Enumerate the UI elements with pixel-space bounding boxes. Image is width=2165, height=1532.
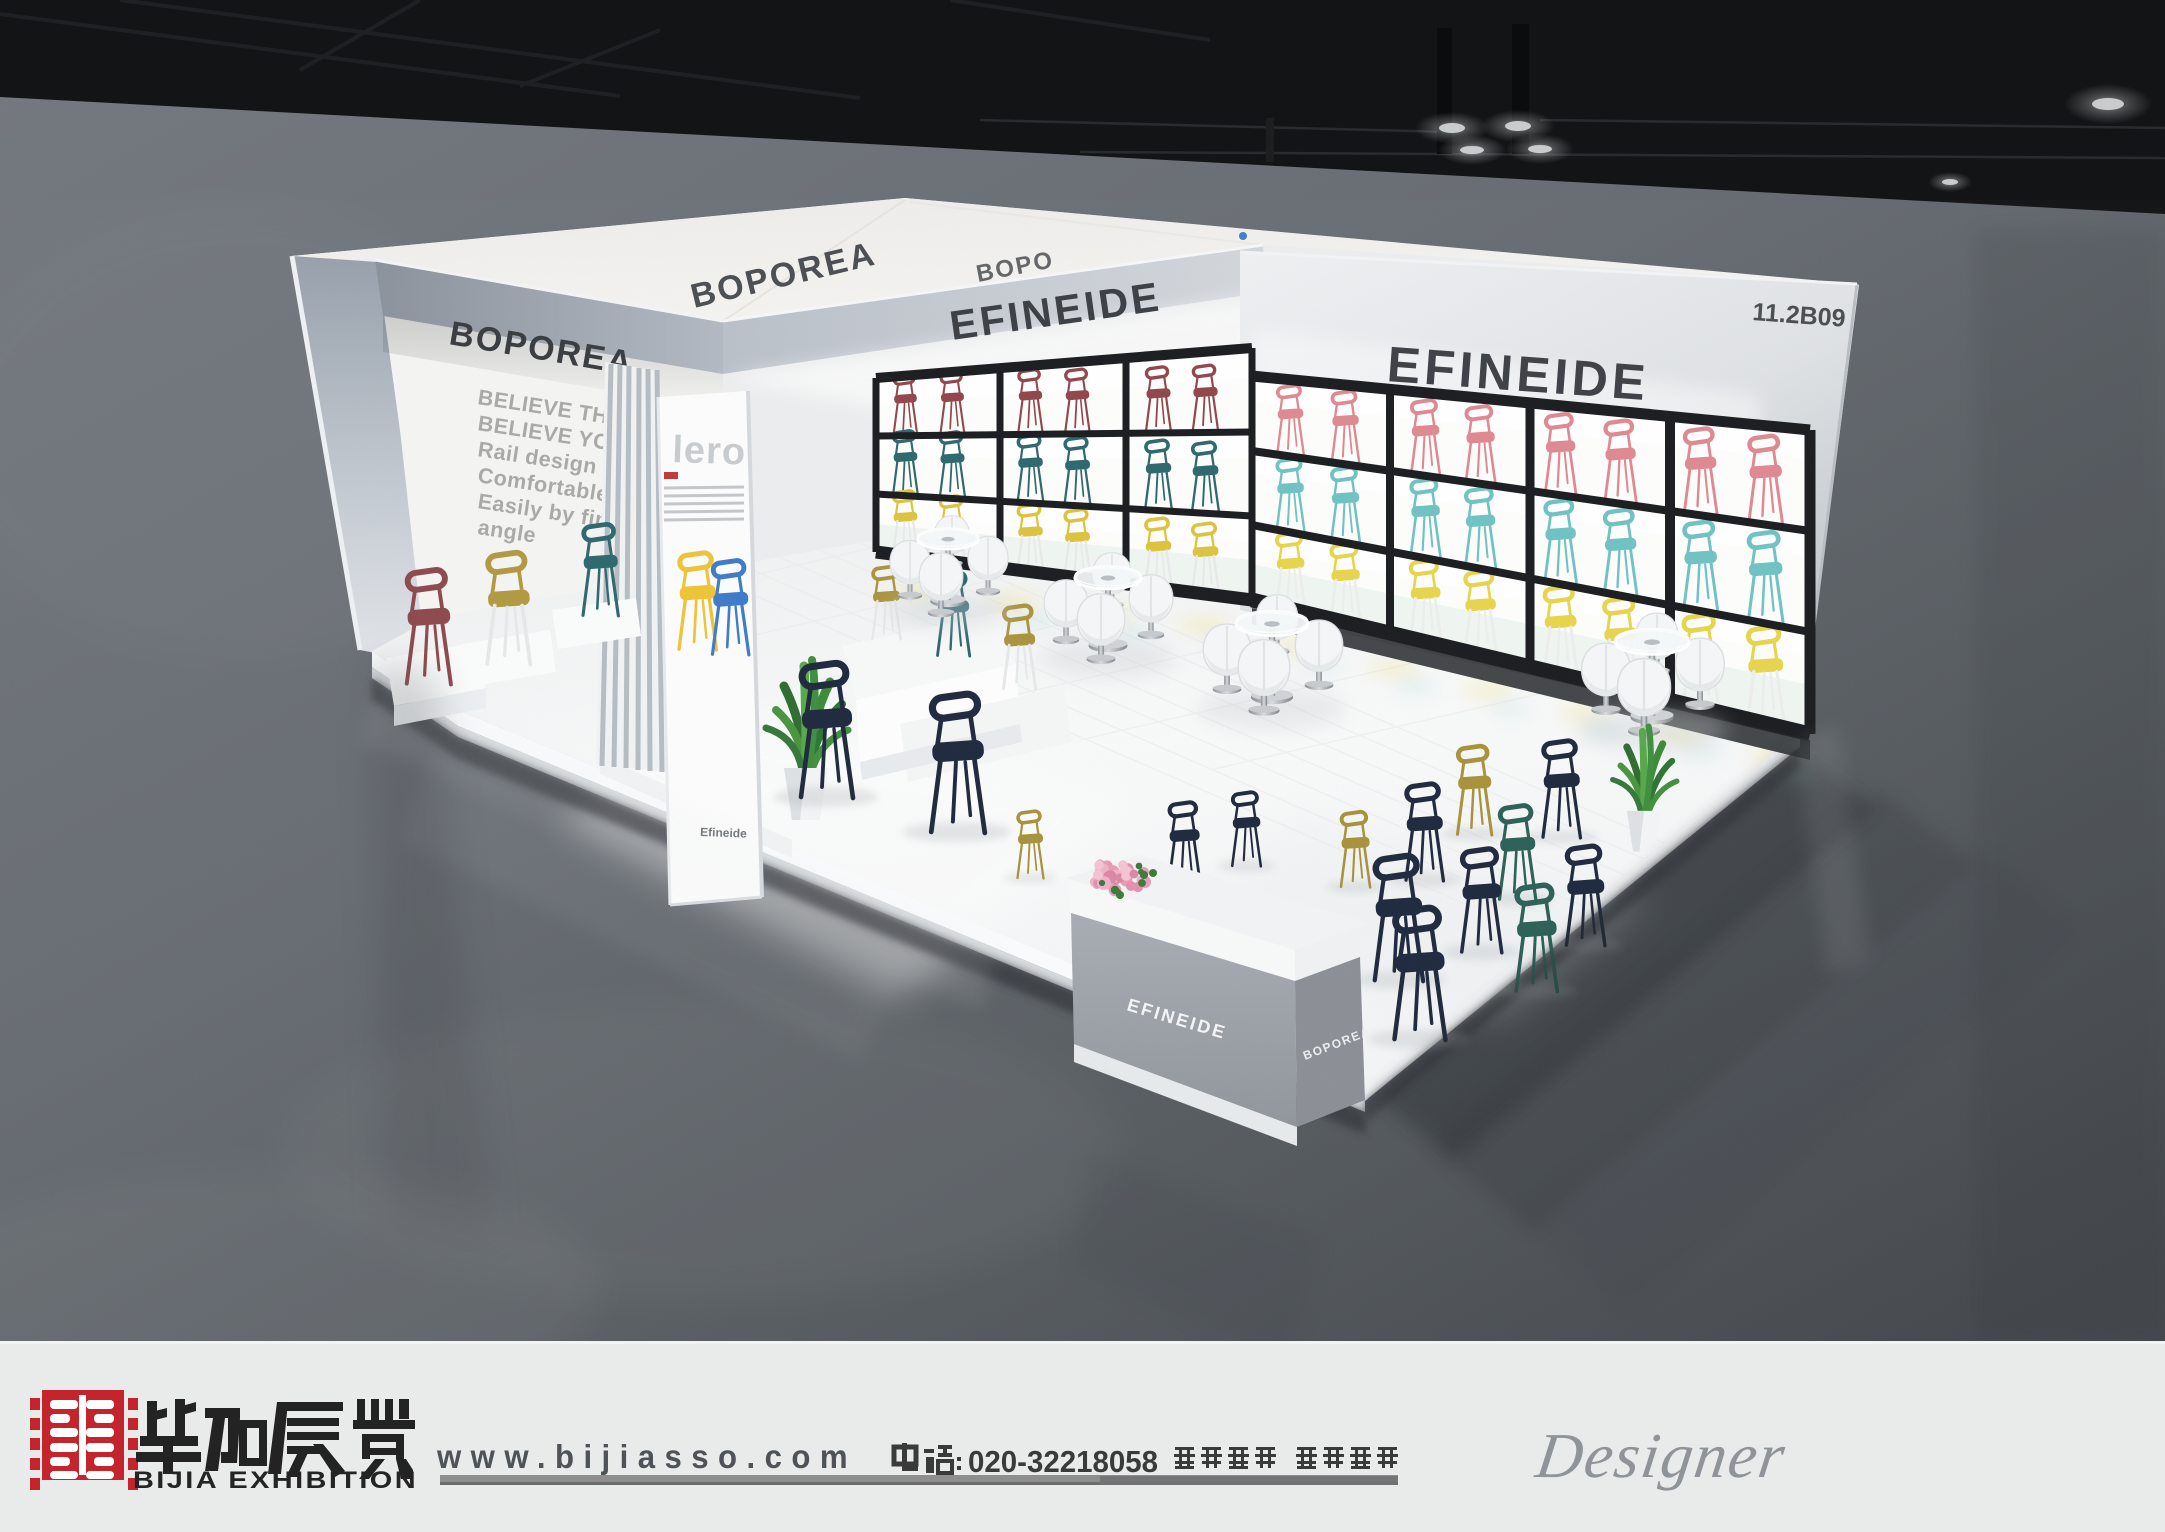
svg-text:www.bijiasso.com: www.bijiasso.com: [436, 1438, 857, 1475]
svg-text:Designer: Designer: [1531, 1420, 1792, 1491]
svg-text:020-32218058: 020-32218058: [968, 1444, 1158, 1479]
svg-text:BIJIA EXHIBITION: BIJIA EXHIBITION: [133, 1467, 418, 1494]
